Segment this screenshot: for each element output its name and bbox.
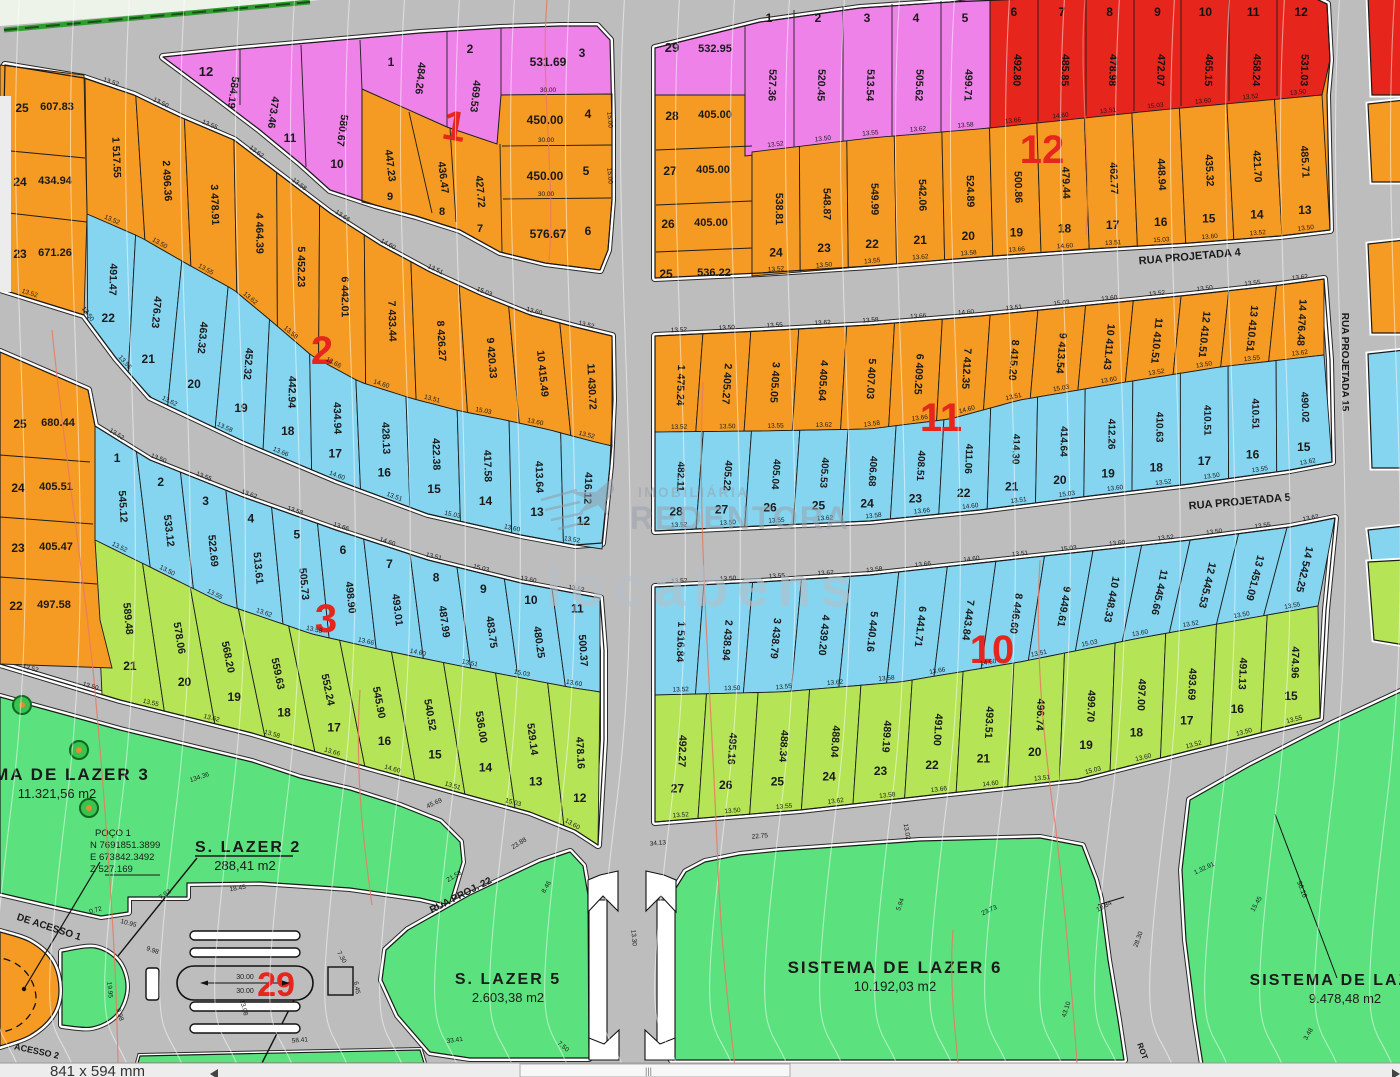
svg-text:13.55: 13.55 — [767, 423, 784, 430]
svg-text:13.52: 13.52 — [1249, 229, 1266, 237]
svg-text:405.00: 405.00 — [694, 217, 728, 229]
svg-text:13.60: 13.60 — [1201, 233, 1218, 241]
svg-text:20: 20 — [1028, 745, 1042, 759]
svg-text:8: 8 — [433, 571, 440, 585]
svg-text:8: 8 — [439, 206, 445, 218]
svg-text:531.03: 531.03 — [1298, 54, 1311, 87]
svg-text:2: 2 — [467, 42, 474, 56]
svg-text:545.12: 545.12 — [116, 490, 130, 523]
svg-text:405.00: 405.00 — [698, 109, 732, 121]
svg-text:485.85: 485.85 — [1058, 54, 1071, 87]
svg-text:4 405.64: 4 405.64 — [815, 360, 829, 402]
svg-text:10.192,03 m2: 10.192,03 m2 — [854, 979, 937, 994]
svg-text:21: 21 — [1005, 479, 1019, 493]
svg-text:13.58: 13.58 — [957, 121, 974, 129]
svg-text:E 673842.3492: E 673842.3492 — [90, 852, 154, 863]
svg-text:536.22: 536.22 — [697, 267, 731, 279]
svg-text:25: 25 — [13, 417, 27, 431]
svg-text:23: 23 — [874, 764, 888, 778]
svg-text:12: 12 — [1294, 5, 1308, 19]
svg-text:13.52: 13.52 — [673, 686, 690, 693]
svg-text:450.00: 450.00 — [527, 113, 564, 127]
svg-text:6: 6 — [1011, 5, 1018, 19]
svg-text:30.00: 30.00 — [236, 988, 254, 995]
svg-text:1: 1 — [766, 11, 773, 25]
svg-text:450.00: 450.00 — [527, 169, 564, 183]
svg-text:13.50: 13.50 — [724, 807, 741, 815]
svg-text:30.00: 30.00 — [538, 191, 555, 198]
svg-text:23: 23 — [13, 247, 27, 261]
svg-text:405.53: 405.53 — [817, 457, 830, 489]
svg-text:11.321,56 m2: 11.321,56 m2 — [18, 786, 97, 801]
svg-text:5: 5 — [293, 528, 300, 542]
svg-text:15.00: 15.00 — [605, 167, 613, 184]
svg-text:405.00: 405.00 — [696, 164, 730, 176]
svg-text:1: 1 — [114, 451, 121, 465]
svg-text:474.96: 474.96 — [1289, 646, 1302, 678]
svg-text:12: 12 — [1020, 128, 1065, 172]
svg-text:3: 3 — [864, 11, 871, 25]
svg-text:24: 24 — [822, 770, 836, 784]
svg-text:|||: ||| — [645, 1066, 652, 1076]
svg-text:18: 18 — [1058, 222, 1072, 236]
svg-text:26: 26 — [719, 778, 733, 792]
svg-text:14: 14 — [479, 761, 493, 775]
svg-text:452.32: 452.32 — [241, 347, 255, 380]
svg-text:25: 25 — [659, 267, 673, 281]
svg-text:13: 13 — [529, 775, 543, 789]
svg-text:23: 23 — [11, 541, 25, 555]
svg-text:13.51: 13.51 — [1105, 239, 1122, 247]
svg-text:22: 22 — [9, 599, 23, 613]
svg-text:10: 10 — [1199, 5, 1213, 19]
svg-text:6: 6 — [585, 224, 592, 238]
svg-text:16: 16 — [1231, 702, 1245, 716]
svg-text:15.03: 15.03 — [1153, 236, 1170, 244]
svg-text:19: 19 — [1079, 738, 1093, 752]
svg-text:10: 10 — [330, 157, 344, 171]
svg-text:26: 26 — [661, 217, 675, 231]
svg-text:17: 17 — [1180, 714, 1194, 728]
svg-text:13.52: 13.52 — [768, 265, 785, 273]
svg-text:13.55: 13.55 — [862, 129, 879, 137]
svg-text:17: 17 — [329, 446, 343, 460]
svg-text:497.58: 497.58 — [37, 599, 71, 611]
svg-text:13.55: 13.55 — [766, 322, 783, 330]
svg-text:15: 15 — [427, 482, 441, 496]
svg-text:493.51: 493.51 — [982, 706, 996, 739]
svg-text:58.41: 58.41 — [291, 1036, 308, 1044]
svg-text:527.36: 527.36 — [765, 69, 778, 102]
svg-text:20: 20 — [178, 675, 192, 689]
svg-text:13.55: 13.55 — [864, 257, 881, 265]
svg-text:5 452.23: 5 452.23 — [295, 246, 307, 287]
svg-text:23: 23 — [909, 492, 923, 506]
svg-text:2: 2 — [311, 329, 333, 373]
svg-text:12: 12 — [577, 514, 591, 528]
svg-text:406.68: 406.68 — [866, 456, 879, 488]
svg-text:607.83: 607.83 — [40, 101, 74, 113]
svg-text:14: 14 — [479, 494, 493, 508]
svg-text:491.13: 491.13 — [1236, 657, 1250, 690]
svg-text:13.66: 13.66 — [910, 312, 927, 320]
svg-text:538.81: 538.81 — [773, 193, 785, 225]
svg-text:410.51: 410.51 — [1201, 405, 1212, 436]
svg-text:21: 21 — [914, 233, 928, 247]
svg-text:30.00: 30.00 — [538, 137, 555, 144]
svg-text:13.58: 13.58 — [862, 316, 879, 324]
svg-text:20: 20 — [187, 377, 201, 391]
svg-text:24: 24 — [769, 246, 783, 260]
svg-text:16: 16 — [378, 734, 392, 748]
svg-text:9: 9 — [1154, 5, 1161, 19]
svg-text:23: 23 — [817, 241, 831, 255]
svg-text:422.38: 422.38 — [429, 438, 442, 471]
svg-text:14 476.48: 14 476.48 — [1294, 299, 1308, 346]
svg-text:412.26: 412.26 — [1105, 419, 1116, 450]
svg-text:513.54: 513.54 — [863, 69, 876, 102]
svg-text:3: 3 — [579, 46, 586, 60]
svg-text:1 475.24: 1 475.24 — [674, 365, 687, 406]
svg-text:6 409.25: 6 409.25 — [911, 353, 925, 395]
svg-text:13.50: 13.50 — [719, 324, 736, 332]
svg-text:2: 2 — [157, 475, 164, 489]
svg-text:21: 21 — [142, 352, 156, 366]
svg-text:13.50: 13.50 — [816, 261, 833, 269]
svg-text:7 433.44: 7 433.44 — [385, 301, 398, 342]
svg-text:22.75: 22.75 — [751, 832, 768, 840]
svg-text:680.44: 680.44 — [41, 417, 76, 429]
svg-text:411.06: 411.06 — [962, 444, 974, 475]
svg-text:542.06: 542.06 — [916, 179, 929, 212]
svg-text:576.67: 576.67 — [530, 227, 567, 241]
svg-text:30.00: 30.00 — [540, 87, 557, 94]
svg-text:19.95: 19.95 — [105, 981, 113, 998]
svg-text:414.30: 414.30 — [1010, 434, 1022, 465]
svg-text:16: 16 — [378, 465, 392, 479]
svg-text:448.94: 448.94 — [1155, 158, 1168, 191]
svg-text:13.62: 13.62 — [814, 319, 831, 327]
svg-text:16: 16 — [1246, 447, 1260, 461]
svg-text:4: 4 — [248, 511, 255, 525]
svg-text:421.70: 421.70 — [1250, 150, 1264, 183]
svg-text:13.66: 13.66 — [1008, 246, 1025, 254]
svg-text:SISTEMA DE LAZ: SISTEMA DE LAZ — [1250, 972, 1400, 989]
svg-text:489.19: 489.19 — [879, 720, 893, 753]
svg-text:462.77: 462.77 — [1107, 162, 1120, 195]
svg-text:19: 19 — [1010, 225, 1024, 239]
svg-text:25: 25 — [771, 775, 785, 789]
svg-text:3: 3 — [202, 494, 209, 508]
svg-text:15: 15 — [1202, 212, 1216, 226]
svg-text:15: 15 — [428, 748, 442, 762]
svg-text:496.74: 496.74 — [1033, 698, 1046, 731]
svg-text:490.02: 490.02 — [1298, 392, 1310, 423]
svg-text:4 464.39: 4 464.39 — [253, 213, 266, 254]
svg-text:1 517.55: 1 517.55 — [109, 137, 123, 178]
svg-text:5: 5 — [962, 11, 969, 25]
svg-text:4: 4 — [585, 107, 592, 121]
svg-text:18: 18 — [281, 424, 295, 438]
svg-text:414.64: 414.64 — [1057, 426, 1069, 457]
svg-text:19: 19 — [234, 401, 248, 415]
svg-text:499.71: 499.71 — [961, 69, 974, 102]
svg-text:410.51: 410.51 — [1249, 398, 1260, 429]
svg-text:21: 21 — [123, 659, 137, 673]
svg-text:12: 12 — [573, 791, 587, 805]
svg-text:22: 22 — [865, 237, 879, 251]
svg-text:7 412.35: 7 412.35 — [959, 348, 973, 390]
svg-text:locabens: locabens — [546, 555, 861, 618]
svg-text:S. LAZER 2: S. LAZER 2 — [195, 839, 301, 856]
svg-text:531.69: 531.69 — [530, 55, 567, 69]
svg-text:14: 14 — [1250, 208, 1264, 222]
svg-text:34.13: 34.13 — [649, 839, 666, 847]
svg-text:8: 8 — [1106, 5, 1113, 19]
svg-text:500.37: 500.37 — [576, 634, 590, 667]
svg-text:5 407.03: 5 407.03 — [864, 358, 878, 400]
svg-text:671.26: 671.26 — [38, 247, 72, 259]
svg-text:POÇO 1: POÇO 1 — [95, 828, 131, 839]
svg-text:405.04: 405.04 — [769, 459, 782, 491]
svg-text:18: 18 — [1130, 726, 1144, 740]
svg-text:7: 7 — [386, 557, 393, 571]
svg-text:11 430.72: 11 430.72 — [584, 363, 598, 410]
svg-text:19: 19 — [228, 690, 242, 704]
svg-text:9: 9 — [387, 191, 393, 203]
svg-text:22: 22 — [925, 758, 939, 772]
svg-text:16: 16 — [1154, 215, 1168, 229]
svg-text:405.47: 405.47 — [39, 541, 73, 553]
svg-text:500.86: 500.86 — [1011, 171, 1024, 204]
svg-text:29: 29 — [257, 966, 295, 1004]
svg-text:841 x 594 mm: 841 x 594 mm — [50, 1063, 145, 1077]
svg-text:6: 6 — [340, 543, 347, 557]
svg-text:7: 7 — [477, 223, 483, 235]
svg-text:IMOBILIÁRIA: IMOBILIÁRIA — [638, 485, 750, 500]
svg-text:505.62: 505.62 — [912, 69, 925, 102]
svg-text:13.55: 13.55 — [775, 683, 792, 691]
svg-text:491.00: 491.00 — [931, 713, 945, 746]
svg-text:413.64: 413.64 — [533, 461, 546, 494]
svg-text:499.70: 499.70 — [1084, 690, 1097, 723]
svg-text:13.50: 13.50 — [724, 685, 741, 692]
svg-text:465.15: 465.15 — [1202, 54, 1215, 87]
svg-text:13.62: 13.62 — [816, 422, 833, 429]
svg-text:13.52: 13.52 — [672, 811, 689, 819]
svg-text:2 496.36: 2 496.36 — [160, 160, 174, 202]
svg-text:488.04: 488.04 — [828, 725, 842, 758]
svg-text:17: 17 — [1106, 218, 1120, 232]
svg-text:13.62: 13.62 — [827, 679, 844, 687]
svg-text:532.95: 532.95 — [698, 43, 732, 55]
svg-text:472.07: 472.07 — [1154, 54, 1167, 87]
svg-text:13.52: 13.52 — [671, 327, 688, 335]
svg-text:21: 21 — [977, 752, 991, 766]
svg-text:493.69: 493.69 — [1185, 668, 1198, 701]
svg-text:1: 1 — [388, 55, 395, 69]
svg-text:MA DE LAZER 3: MA DE LAZER 3 — [0, 765, 150, 784]
svg-text:458.24: 458.24 — [1250, 54, 1263, 87]
svg-text:24: 24 — [860, 496, 874, 510]
svg-text:11: 11 — [1247, 5, 1260, 19]
svg-text:13.62: 13.62 — [912, 253, 929, 261]
svg-text:5: 5 — [583, 164, 590, 178]
svg-text:17: 17 — [1198, 454, 1212, 468]
svg-text:18: 18 — [277, 705, 291, 719]
svg-text:478.16: 478.16 — [573, 736, 587, 769]
svg-text:19: 19 — [1101, 467, 1115, 481]
svg-text:4: 4 — [913, 11, 920, 25]
svg-text:REDENTORA: REDENTORA — [630, 500, 850, 536]
svg-text:13.62: 13.62 — [910, 125, 927, 133]
svg-text:15.00: 15.00 — [605, 111, 613, 128]
svg-text:3 478.91: 3 478.91 — [208, 184, 221, 225]
svg-text:435.32: 435.32 — [1202, 154, 1216, 187]
svg-text:497.00: 497.00 — [1135, 679, 1148, 712]
svg-text:8 426.27: 8 426.27 — [434, 320, 448, 362]
svg-text:13: 13 — [530, 505, 544, 519]
svg-text:520.45: 520.45 — [814, 69, 827, 102]
svg-text:434.94: 434.94 — [331, 402, 344, 435]
svg-text:25: 25 — [15, 101, 29, 115]
svg-text:492.80: 492.80 — [1010, 54, 1023, 87]
svg-text:428.13: 428.13 — [379, 422, 392, 455]
svg-text:13.55: 13.55 — [776, 803, 793, 811]
svg-text:15: 15 — [1297, 440, 1311, 454]
svg-text:548.87: 548.87 — [820, 188, 832, 220]
svg-text:2.603,38 m2: 2.603,38 m2 — [472, 990, 544, 1005]
svg-text:9: 9 — [480, 582, 487, 596]
svg-text:N 7691851.3899: N 7691851.3899 — [90, 840, 160, 851]
svg-text:410.63: 410.63 — [1153, 412, 1164, 443]
svg-text:22: 22 — [102, 311, 116, 325]
svg-text:13.58: 13.58 — [878, 674, 895, 682]
svg-text:405.51: 405.51 — [39, 481, 73, 493]
svg-text:13.52: 13.52 — [671, 424, 688, 431]
svg-text:12: 12 — [199, 64, 213, 79]
svg-text:408.51: 408.51 — [914, 450, 927, 482]
svg-text:30.00: 30.00 — [236, 974, 254, 981]
svg-text:27: 27 — [663, 164, 677, 178]
svg-text:20: 20 — [962, 229, 976, 243]
svg-text:20: 20 — [1053, 473, 1067, 487]
svg-text:14.60: 14.60 — [958, 308, 975, 316]
svg-text:1 516.84: 1 516.84 — [674, 621, 688, 662]
svg-text:485.71: 485.71 — [1298, 145, 1312, 178]
svg-text:10: 10 — [524, 593, 538, 607]
svg-text:13.30: 13.30 — [629, 929, 637, 946]
svg-text:524.89: 524.89 — [964, 175, 977, 208]
svg-text:13.58: 13.58 — [960, 249, 977, 257]
svg-text:434.94: 434.94 — [38, 175, 73, 187]
svg-text:549.99: 549.99 — [868, 183, 880, 215]
svg-text:13.50: 13.50 — [719, 423, 736, 430]
svg-text:28: 28 — [665, 109, 679, 123]
svg-text:17: 17 — [327, 721, 341, 735]
svg-text:Z 527.169: Z 527.169 — [90, 864, 133, 875]
svg-text:18: 18 — [1150, 460, 1164, 474]
svg-text:24: 24 — [11, 481, 25, 495]
svg-text:417.58: 417.58 — [481, 450, 494, 483]
svg-text:491.47: 491.47 — [106, 263, 119, 296]
svg-text:14.60: 14.60 — [1057, 242, 1074, 250]
svg-text:13: 13 — [1298, 203, 1312, 217]
